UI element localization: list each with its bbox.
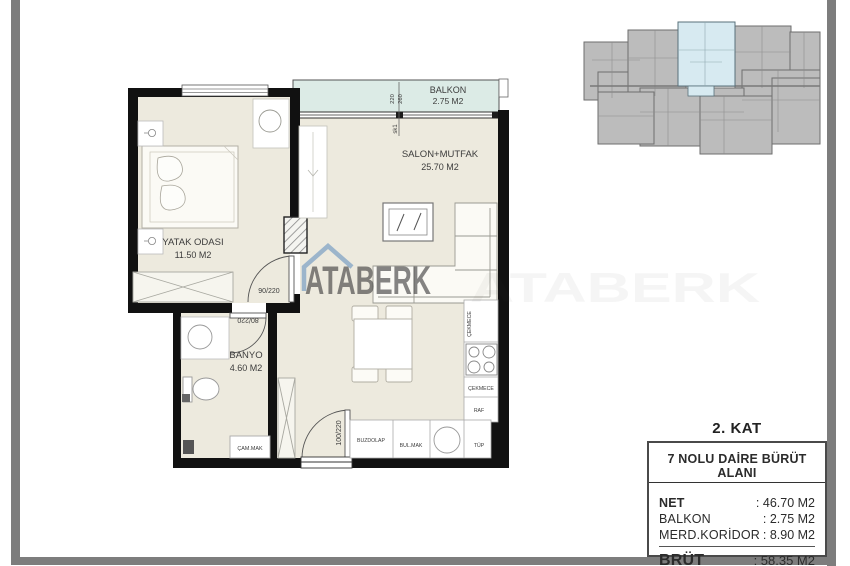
living-area: 25.70 M2 bbox=[421, 162, 459, 172]
bedroom-door-label: 90/220 bbox=[258, 288, 280, 295]
balcony-name: BALKON bbox=[430, 85, 467, 95]
living-name: SALON+MUTFAK bbox=[402, 149, 479, 160]
floorplan-page: 220 260 sk1 bbox=[0, 0, 850, 566]
bedroom-name: YATAK ODASI bbox=[162, 237, 223, 248]
bedroom-window bbox=[182, 85, 268, 96]
fridge-label: BUZDOLAP bbox=[357, 438, 386, 444]
info-row-balkon: BALKON : 2.75 M2 bbox=[659, 511, 815, 527]
balkon-label: BALKON bbox=[659, 511, 711, 527]
net-value: : 46.70 M2 bbox=[756, 495, 815, 511]
balcony-step bbox=[499, 79, 508, 97]
balcony-sliding-door bbox=[293, 112, 499, 119]
info-row-koridor: MERD.KORİDOR : 8.90 M2 bbox=[659, 527, 815, 547]
bathroom-door-label: 80/220 bbox=[237, 316, 259, 323]
balcony-floor bbox=[293, 80, 499, 112]
drawer-vertical-label: ÇEKMECE bbox=[467, 311, 473, 337]
washing-machine-label: ÇAM.MAK bbox=[237, 446, 263, 452]
shelf-label: RAF bbox=[474, 408, 484, 414]
balkon-value: : 2.75 M2 bbox=[763, 511, 815, 527]
brut-label: BRÜT bbox=[659, 553, 704, 566]
apartment-info-box: 7 NOLU DAİRE BÜRÜT ALANI NET : 46.70 M2 … bbox=[647, 441, 827, 557]
net-label: NET bbox=[659, 495, 685, 511]
watermark-faint: ATABERK bbox=[470, 264, 760, 311]
drawer-label: ÇEKMECE bbox=[468, 386, 494, 392]
info-row-brut: BRÜT : 58.35 M2 bbox=[659, 553, 815, 566]
shaft-hatch bbox=[284, 217, 307, 253]
info-title: 7 NOLU DAİRE BÜRÜT ALANI bbox=[649, 452, 825, 483]
entrance-door-label: 100/220 bbox=[336, 420, 343, 445]
dim-260: 260 bbox=[398, 94, 404, 104]
tv bbox=[383, 203, 433, 241]
bathroom-area: 4.60 M2 bbox=[230, 363, 263, 373]
site-plan bbox=[584, 22, 820, 154]
bed bbox=[142, 146, 238, 228]
tv-unit bbox=[299, 126, 327, 218]
siteplan-highlighted-unit bbox=[678, 22, 735, 96]
wall-box-icon bbox=[182, 394, 190, 402]
bedroom-corner-table bbox=[253, 99, 289, 148]
dim-sk1: sk1 bbox=[393, 124, 399, 134]
tube-label: TÜP bbox=[474, 442, 485, 449]
info-row-net: NET : 46.70 M2 bbox=[659, 495, 815, 511]
dishwasher-label: BUL.MAK bbox=[400, 443, 423, 449]
dim-220: 220 bbox=[390, 94, 396, 104]
koridor-value: : 8.90 M2 bbox=[763, 527, 815, 543]
koridor-label: MERD.KORİDOR bbox=[659, 527, 760, 543]
floor-label: 2. KAT bbox=[647, 420, 827, 437]
watermark-brand: ATABERK bbox=[305, 259, 431, 303]
balcony-area: 2.75 M2 bbox=[433, 96, 464, 106]
electric-panel-icon bbox=[183, 440, 194, 454]
bedroom-wardrobe bbox=[133, 272, 233, 302]
bedroom-area: 11.50 M2 bbox=[175, 250, 212, 260]
bathroom-name: BANYO bbox=[229, 350, 262, 361]
hall-wardrobe bbox=[278, 378, 295, 458]
brut-value: : 58.35 M2 bbox=[754, 553, 815, 566]
toilet bbox=[193, 378, 219, 400]
